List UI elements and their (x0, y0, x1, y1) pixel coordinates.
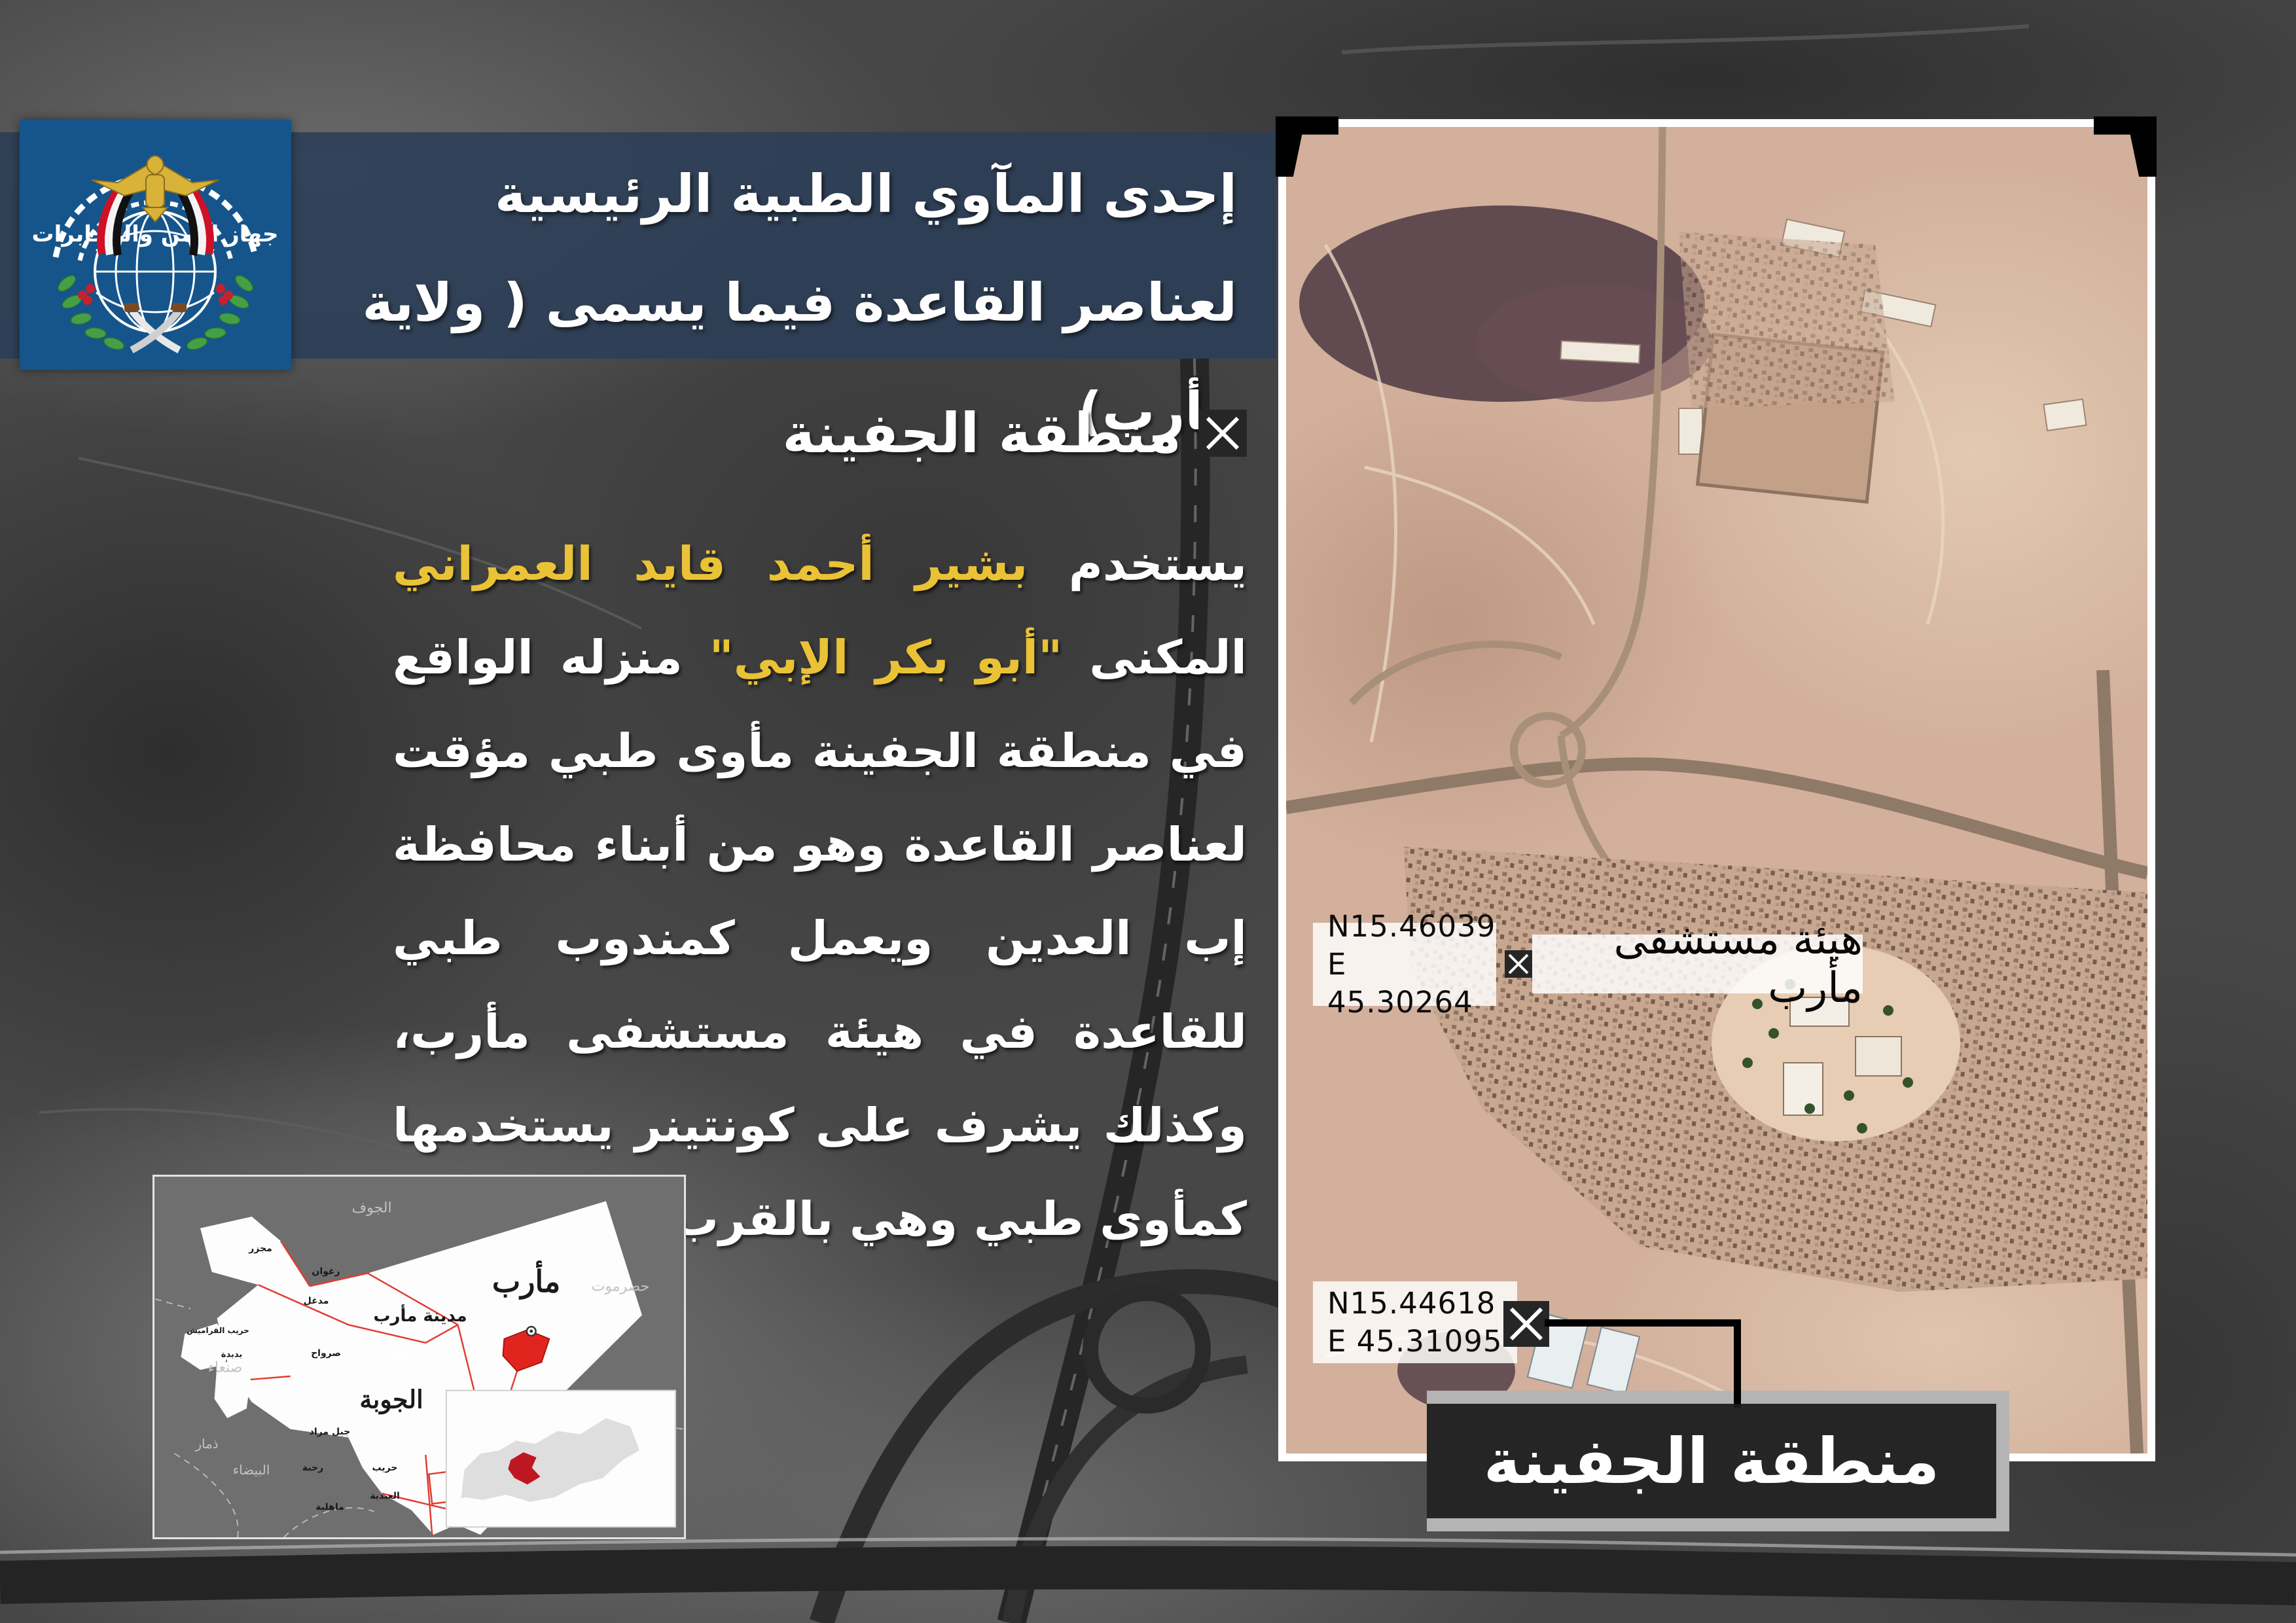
coordinate-lon: E 45.31095 (1327, 1323, 1517, 1361)
svg-text:جهاز الأمن والمخابرات: جهاز الأمن والمخابرات (32, 220, 279, 247)
satellite-image-frame (1278, 119, 2155, 1461)
body-paragraph: يستخدم بشير أحمد قايد العمراني المكنى "أ… (393, 517, 1247, 1178)
agency-logo: جهاز الأمن والمخابرات (20, 120, 291, 370)
map-label-district: مدغل (304, 1296, 329, 1306)
coordinate-lat: N15.46039 (1327, 908, 1496, 946)
map-label-jawba: الجوبة (359, 1385, 423, 1414)
map-label-neighbor: حضرموت (592, 1279, 650, 1295)
highlight-operative-name: بشير أحمد قايد العمراني (393, 537, 1028, 591)
map-label-neighbor: ذمار (195, 1436, 218, 1452)
map-label-district: بدبدة (221, 1350, 242, 1360)
x-marker-icon (1198, 410, 1247, 457)
connector-line-horizontal (1545, 1319, 1741, 1327)
map-label-neighbor: الجوف (351, 1200, 391, 1217)
map-label-district: حريب (372, 1463, 398, 1473)
coordinates-jufainah: N15.44618 E 45.31095 (1313, 1281, 1517, 1363)
map-label-district: رحبة (302, 1463, 323, 1473)
map-label-district: العبدية (370, 1491, 400, 1501)
satellite-image (1286, 127, 2147, 1454)
map-label-district: مجزر (249, 1243, 272, 1254)
body-seg-3: منزله الواقع في منطقة الجفينة مأوى طبي م… (393, 630, 1247, 1246)
infographic-canvas: جهاز الأمن والمخابرات (0, 0, 2296, 1623)
connector-line-vertical (1734, 1319, 1741, 1408)
map-label-marib-governorate: مأرب (492, 1264, 560, 1299)
page-title: إحدى المآوي الطبية الرئيسية لعناصر القاع… (275, 140, 1237, 356)
governorate-map-inset: الجوف حضرموت صنعاء ذمار البيضاء مأرب الج… (152, 1175, 686, 1539)
hospital-label: هيئة مستشفى مأرب (1532, 935, 1863, 993)
coordinates-hospital: N15.46039 E 45.30264 (1313, 923, 1496, 1006)
map-label-district: صرواح (311, 1348, 341, 1359)
body-seg-2: المكنى (1062, 630, 1247, 685)
area-label-box: منطقة الجفينة (1427, 1404, 1996, 1518)
map-label-district: حريب القراميش (187, 1326, 249, 1335)
x-marker-house-icon (1503, 1301, 1549, 1347)
agency-emblem-icon: جهاز الأمن والمخابرات (20, 120, 291, 370)
map-label-district: رغوان (312, 1266, 340, 1277)
section-title-row: منطقة الجفينة (393, 401, 1247, 466)
page-title-line1: إحدى المآوي الطبية الرئيسية (275, 140, 1237, 249)
highlight-alias: "أبو بكر الإبي" (709, 630, 1062, 685)
x-marker-hospital-icon (1505, 950, 1532, 978)
coordinate-lat: N15.44618 (1327, 1285, 1517, 1323)
map-label-neighbor: صنعاء (208, 1360, 243, 1376)
map-label-marib-city: مدينة مأرب (373, 1306, 467, 1326)
map-label-district: جبل مراد (310, 1427, 351, 1437)
map-label-neighbor: البيضاء (233, 1462, 270, 1478)
section-title: منطقة الجفينة (782, 401, 1181, 465)
map-label-district: ماهلية (315, 1502, 344, 1512)
map-label-red-district: مأرب (386, 1349, 410, 1360)
body-seg-1: يستخدم (1028, 537, 1247, 591)
coordinate-lon: E 45.30264 (1327, 946, 1496, 1022)
